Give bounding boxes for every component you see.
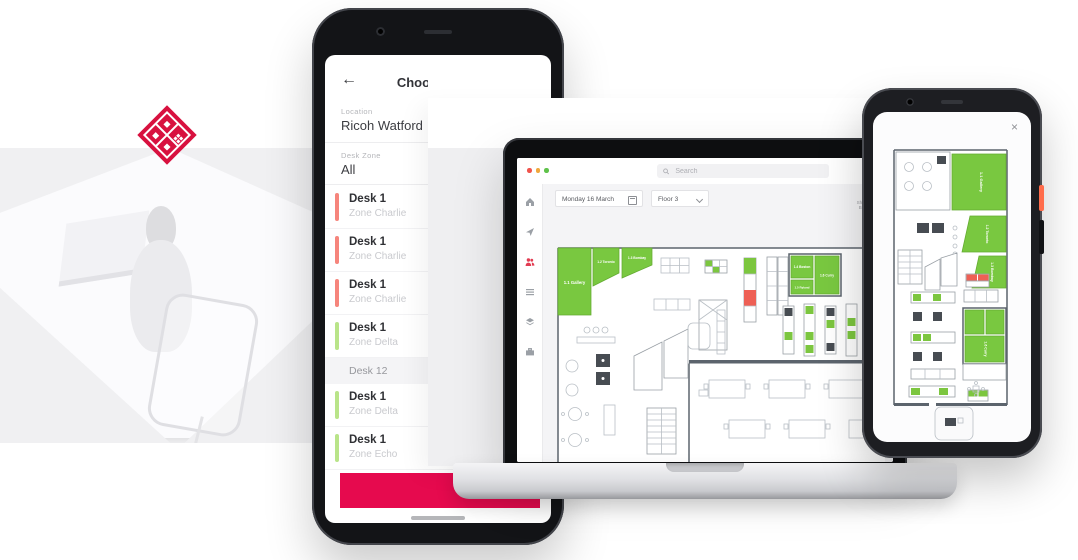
desk-name: Desk 1	[349, 279, 386, 291]
date-value: Monday 16 March	[562, 196, 614, 203]
desk-zone-value[interactable]: All	[341, 162, 355, 177]
desk-name: Desk 1	[349, 193, 386, 205]
desk-status-bar	[335, 193, 339, 221]
desk-status-bar	[335, 391, 339, 419]
date-picker[interactable]: Monday 16 March	[555, 190, 643, 207]
mobile-floorplan[interactable]: 1.1 Gallery 1.2 Toronto 1.3 Bombay	[881, 138, 1023, 442]
laptop-display: Monday 16 March Floor 3 Show Desk Bookin…	[517, 158, 893, 462]
lobby-protrusion	[935, 407, 973, 440]
calendar-icon	[628, 196, 637, 205]
window-control-dot[interactable]	[544, 168, 549, 173]
camera-icon	[376, 27, 385, 36]
people-icon	[525, 257, 535, 267]
sidebar-item-navigate[interactable]	[525, 224, 535, 242]
power-button	[1039, 185, 1044, 211]
floorplan[interactable]: 1.1 Gallery 1.2 Toronto 1.3 Bombay 1.4 B…	[549, 240, 885, 462]
desk-zone: Zone Echo	[349, 449, 397, 460]
svg-text:1.3 Bombay: 1.3 Bombay	[628, 256, 646, 260]
phone-right-device: × 1.1 Gallery	[862, 88, 1042, 458]
desk-name: Desk 1	[349, 391, 386, 403]
briefcase-icon	[525, 347, 535, 357]
svg-text:1.1 Gallery: 1.1 Gallery	[979, 172, 984, 193]
desk-name: Desk 1	[349, 322, 386, 334]
desk-zone: Zone Charlie	[349, 294, 406, 305]
sidebar-item-bookings[interactable]	[525, 284, 535, 302]
window-control-dot[interactable]	[536, 168, 541, 173]
app-body: Monday 16 March Floor 3 Show Desk Bookin…	[517, 184, 893, 462]
sidebar-item-floors[interactable]	[525, 314, 535, 332]
close-icon[interactable]: ×	[1011, 120, 1018, 134]
svg-text:1.2 Toronto: 1.2 Toronto	[985, 225, 989, 244]
home-icon	[525, 197, 535, 207]
browser-topbar	[517, 158, 893, 185]
list-icon	[525, 287, 535, 297]
laptop-base-notch	[666, 463, 744, 472]
desk-status-bar	[335, 322, 339, 350]
layers-icon	[525, 317, 535, 327]
chevron-down-icon	[696, 195, 703, 202]
navigate-icon	[525, 227, 535, 237]
camera-icon	[906, 98, 914, 106]
sidebar-item-visitors[interactable]	[525, 344, 535, 362]
location-label: Location	[341, 107, 373, 116]
location-value[interactable]: Ricoh Watford	[341, 118, 423, 133]
speaker-grille	[941, 100, 963, 104]
svg-text:1.1 Gallery: 1.1 Gallery	[564, 280, 586, 285]
speaker-grille	[424, 30, 452, 34]
desk-zone: Zone Delta	[349, 337, 398, 348]
svg-text:1.2 Toronto: 1.2 Toronto	[597, 260, 614, 264]
window-control-dot[interactable]	[527, 168, 532, 173]
svg-text:1.6 Curry: 1.6 Curry	[820, 274, 834, 278]
window-controls[interactable]	[527, 168, 549, 173]
desk-zone-label: Desk Zone	[341, 151, 381, 160]
floor-value: Floor 3	[658, 196, 678, 203]
volume-button	[1039, 220, 1044, 254]
desk-zone: Zone Delta	[349, 406, 398, 417]
desk-zone: Zone Charlie	[349, 251, 406, 262]
locker-bank[interactable]	[705, 260, 727, 273]
desk-status-bar	[335, 279, 339, 307]
search-icon	[663, 168, 669, 175]
desk-name: Desk 1	[349, 434, 386, 446]
search-bar[interactable]	[657, 164, 829, 178]
desk-status-bar	[335, 434, 339, 462]
desk-name: Desk 1	[349, 236, 386, 248]
laptop-device: Monday 16 March Floor 3 Show Desk Bookin…	[503, 138, 907, 468]
svg-text:1.3 Bombay: 1.3 Bombay	[990, 262, 994, 282]
svg-text:1.4 Boston: 1.4 Boston	[794, 265, 811, 269]
desk-status-bar	[335, 236, 339, 264]
sidebar-item-people[interactable]	[525, 254, 535, 272]
floor-select[interactable]: Floor 3	[651, 190, 709, 207]
laptop-base	[453, 463, 957, 499]
search-input[interactable]	[673, 167, 823, 176]
sidebar-item-home[interactable]	[525, 194, 535, 212]
home-indicator	[411, 516, 465, 520]
app-sidebar	[517, 184, 543, 462]
svg-text:1.6 Curry: 1.6 Curry	[984, 341, 988, 356]
desk-zone: Zone Charlie	[349, 208, 406, 219]
page-screenshot-top	[428, 66, 545, 98]
phone-right-screen: × 1.1 Gallery	[873, 112, 1031, 442]
svg-text:1.5 Ryland: 1.5 Ryland	[794, 286, 809, 290]
